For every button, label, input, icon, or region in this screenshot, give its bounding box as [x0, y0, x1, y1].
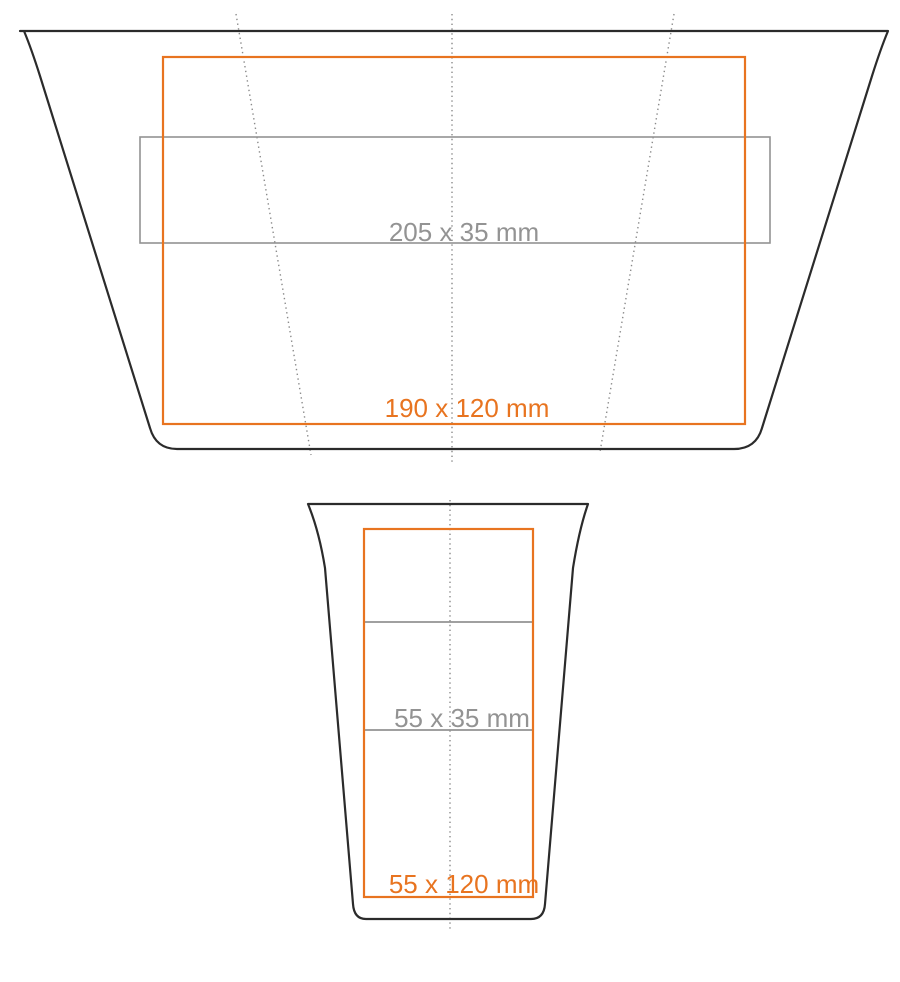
fold-line-left — [236, 14, 311, 455]
side-max-dimension-label: 55 x 120 mm — [389, 869, 539, 899]
diagram-canvas: 205 x 35 mm 190 x 120 mm 55 x 35 mm 55 x… — [0, 0, 900, 982]
fold-line-right — [600, 14, 674, 452]
unfolded-view-group: 205 x 35 mm 190 x 120 mm — [20, 14, 888, 462]
unfolded-strip-dimension-label: 205 x 35 mm — [389, 217, 539, 247]
print-template-diagram: 205 x 35 mm 190 x 120 mm 55 x 35 mm 55 x… — [0, 0, 900, 982]
side-strip-dimension-label: 55 x 35 mm — [394, 703, 530, 733]
unfolded-max-dimension-label: 190 x 120 mm — [385, 393, 550, 423]
side-view-group: 55 x 35 mm 55 x 120 mm — [308, 500, 588, 931]
